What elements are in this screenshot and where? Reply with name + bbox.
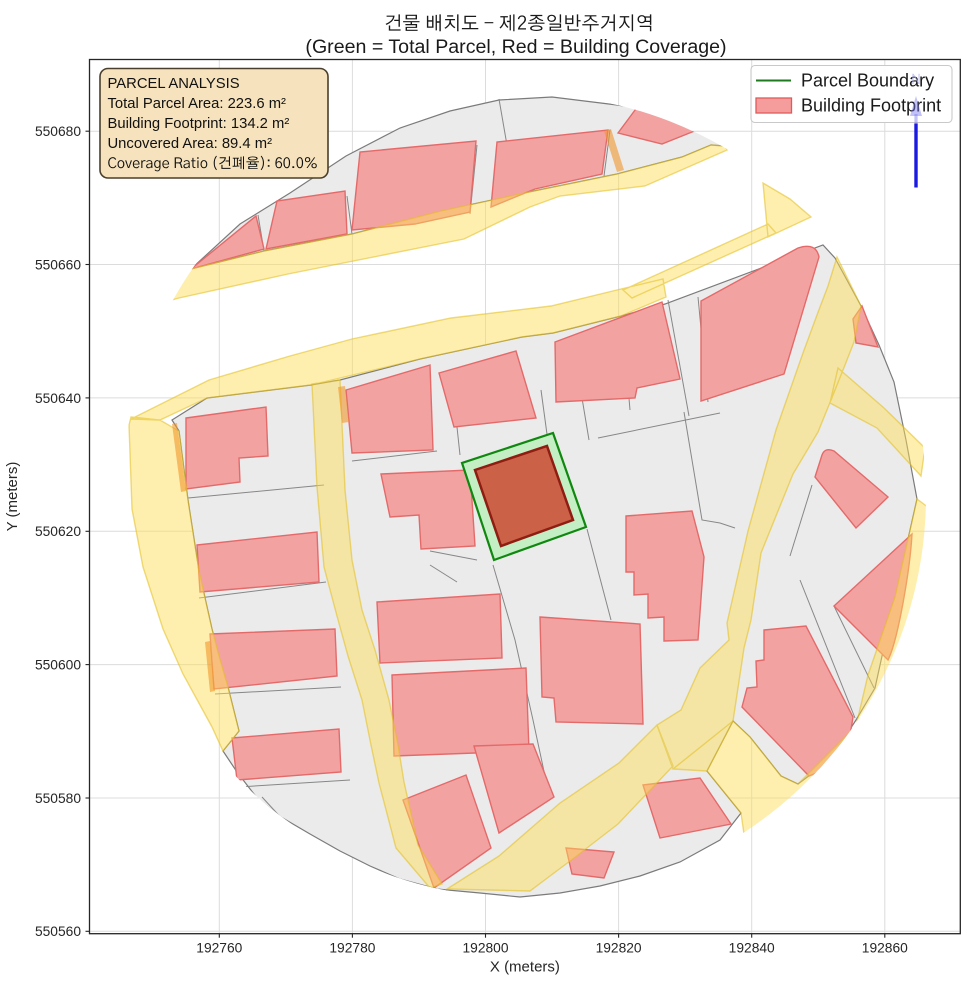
svg-text:PARCEL ANALYSIS: PARCEL ANALYSIS (108, 76, 240, 92)
svg-text:192820: 192820 (596, 941, 642, 956)
svg-text:550580: 550580 (35, 791, 81, 806)
svg-text:192840: 192840 (729, 941, 775, 956)
svg-text:X (meters): X (meters) (490, 959, 560, 976)
svg-text:Y (meters): Y (meters) (4, 462, 21, 532)
svg-text:192860: 192860 (862, 941, 908, 956)
svg-text:550680: 550680 (35, 124, 81, 139)
svg-text:550560: 550560 (35, 924, 81, 939)
svg-text:Parcel Boundary: Parcel Boundary (801, 71, 934, 91)
svg-text:550600: 550600 (35, 658, 81, 673)
svg-text:Total Parcel Area: 223.6 m²: Total Parcel Area: 223.6 m² (108, 96, 287, 112)
svg-text:550640: 550640 (35, 391, 81, 406)
svg-text:192780: 192780 (329, 941, 375, 956)
svg-text:550660: 550660 (35, 257, 81, 272)
svg-text:Uncovered Area: 89.4 m²: Uncovered Area: 89.4 m² (108, 136, 273, 152)
svg-text:Building Footprint: 134.2 m²: Building Footprint: 134.2 m² (108, 116, 290, 132)
svg-text:550620: 550620 (35, 524, 81, 539)
svg-text:(Green = Total Parcel, Red = B: (Green = Total Parcel, Red = Building Co… (305, 36, 726, 58)
svg-text:192800: 192800 (462, 941, 508, 956)
svg-text:192760: 192760 (196, 941, 242, 956)
